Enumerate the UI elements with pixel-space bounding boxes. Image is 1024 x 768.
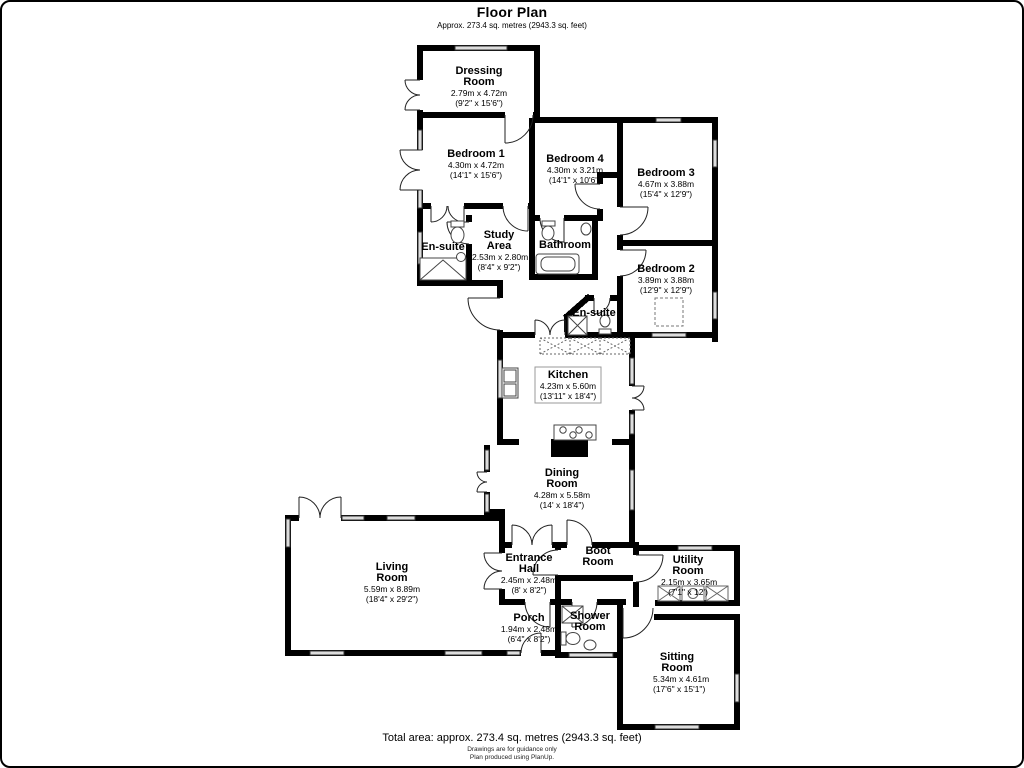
room-dim-imperial: (6'4" x 8'2") (494, 634, 564, 644)
disclaimer-text: Drawings are for guidance only Plan prod… (2, 746, 1022, 762)
room-dim-metric: 2.45m x 2.48m (497, 575, 561, 585)
room-label-ensuite1: En-suite (408, 242, 478, 253)
room-label-living: Living Room 5.59m x 8.89m (18'4" x 29'2"… (362, 562, 422, 604)
room-dim-imperial: (13'11" x 18'4") (528, 391, 608, 401)
room-dim-imperial: (18'4" x 29'2") (362, 594, 422, 604)
door-utility (636, 555, 663, 582)
room-dim-imperial: (14' x 18'4") (532, 500, 592, 510)
door-dressing-bedroom1 (505, 115, 533, 143)
room-name: Entrance Hall (497, 553, 561, 575)
room-name: Porch (494, 613, 564, 624)
room-dim-metric: 4.67m x 3.88m (621, 179, 711, 189)
basin-icon (581, 223, 591, 235)
room-label-porch: Porch 1.94m x 2.48m (6'4" x 8'2") (494, 613, 564, 644)
room-name: Kitchen (528, 370, 608, 381)
toilet-icon (542, 221, 555, 240)
chimney-breast (551, 439, 588, 457)
room-label-boot: Boot Room (576, 546, 620, 568)
room-name: Dressing Room (444, 66, 514, 88)
room-label-utility: Utility Room 2.15m x 3.65m (7'1" x 12') (661, 555, 715, 597)
room-name: Bedroom 4 (530, 154, 620, 165)
room-label-shower: Shower Room (564, 611, 616, 633)
room-dim-metric: 2.15m x 3.65m (661, 577, 715, 587)
room-name: Bedroom 1 (431, 149, 521, 160)
room-label-bedroom2: Bedroom 2 3.89m x 3.88m (12'9" x 12'9") (621, 264, 711, 295)
room-dim-imperial: (12'9" x 12'9") (621, 285, 711, 295)
door-sitting-room (623, 608, 653, 638)
room-dim-metric: 1.94m x 2.48m (494, 624, 564, 634)
room-dim-imperial: (14'1" x 15'6") (431, 170, 521, 180)
room-dim-metric: 4.23m x 5.60m (528, 381, 608, 391)
room-dim-imperial: (15'4" x 12'9") (621, 189, 711, 199)
disclaimer-line2: Plan produced using PlanUp. (2, 754, 1022, 762)
room-label-ensuite2: En-suite (559, 308, 629, 319)
stove-icon (554, 425, 596, 440)
door-bedroom3 (620, 207, 648, 235)
door-bedroom4 (575, 184, 600, 209)
room-name: Bathroom (525, 240, 605, 251)
room-dim-metric: 2.53m x 2.80m (472, 252, 526, 262)
room-label-entrance: Entrance Hall 2.45m x 2.48m (8' x 8'2") (497, 553, 561, 595)
room-name: Study Area (472, 230, 526, 252)
skylight-dashed-outline (655, 298, 683, 326)
toilet-icon (451, 221, 464, 243)
door-study (503, 206, 528, 231)
room-name: Sitting Room (653, 652, 701, 674)
total-area-text: Total area: approx. 273.4 sq. metres (29… (2, 732, 1022, 744)
room-name: Bedroom 3 (621, 168, 711, 179)
room-dim-imperial: (7'1" x 12') (661, 587, 715, 597)
room-label-bathroom: Bathroom (525, 240, 605, 251)
floorplan-canvas (2, 2, 1024, 768)
room-label-bedroom4: Bedroom 4 4.30m x 3.21m (14'1" x 10'6") (530, 154, 620, 185)
room-name: Shower Room (564, 611, 616, 633)
bathtub-icon (536, 254, 579, 274)
room-label-dressing: Dressing Room 2.79m x 4.72m (9'2" x 15'6… (444, 66, 514, 108)
room-dim-imperial: (17'6" x 15'1") (653, 684, 701, 694)
room-label-study: Study Area 2.53m x 2.80m (8'4" x 9'2") (472, 230, 526, 272)
room-label-sitting: Sitting Room 5.34m x 4.61m (17'6" x 15'1… (653, 652, 701, 694)
room-dim-metric: 5.34m x 4.61m (653, 674, 701, 684)
room-dim-imperial: (8'4" x 9'2") (472, 262, 526, 272)
room-name: En-suite (408, 242, 478, 253)
cupboard-icon (540, 338, 630, 354)
room-dim-metric: 3.89m x 3.88m (621, 275, 711, 285)
room-name: Bedroom 2 (621, 264, 711, 275)
room-name: Utility Room (661, 555, 715, 577)
room-dim-metric: 4.30m x 3.21m (530, 165, 620, 175)
room-dim-metric: 4.30m x 4.72m (431, 160, 521, 170)
door-hall-exterior (468, 298, 500, 330)
door-living-french-b (320, 497, 341, 518)
floorplan-page: Floor Plan Approx. 273.4 sq. metres (294… (0, 0, 1024, 768)
kitchen-sink-icon (502, 368, 518, 398)
room-dim-metric: 2.79m x 4.72m (444, 88, 514, 98)
room-name: Dining Room (532, 468, 592, 490)
room-dim-imperial: (14'1" x 10'6") (530, 175, 620, 185)
room-name: Living Room (362, 562, 422, 584)
room-label-dining: Dining Room 4.28m x 5.58m (14' x 18'4") (532, 468, 592, 510)
room-name: Boot Room (576, 546, 620, 568)
room-dim-metric: 5.59m x 8.89m (362, 584, 422, 594)
room-name: En-suite (559, 308, 629, 319)
plan-footer: Total area: approx. 273.4 sq. metres (29… (2, 732, 1022, 762)
room-dim-imperial: (9'2" x 15'6") (444, 98, 514, 108)
door-living-french-a (299, 497, 320, 518)
room-dim-metric: 4.28m x 5.58m (532, 490, 592, 500)
room-label-bedroom1: Bedroom 1 4.30m x 4.72m (14'1" x 15'6") (431, 149, 521, 180)
door-boot-room (567, 520, 592, 545)
room-dim-imperial: (8' x 8'2") (497, 585, 561, 595)
room-label-kitchen: Kitchen 4.23m x 5.60m (13'11" x 18'4") (528, 370, 608, 401)
room-label-bedroom3: Bedroom 3 4.67m x 3.88m (15'4" x 12'9") (621, 168, 711, 199)
basin-icon (584, 640, 596, 650)
basin-icon (457, 253, 466, 262)
disclaimer-line1: Drawings are for guidance only (2, 746, 1022, 754)
